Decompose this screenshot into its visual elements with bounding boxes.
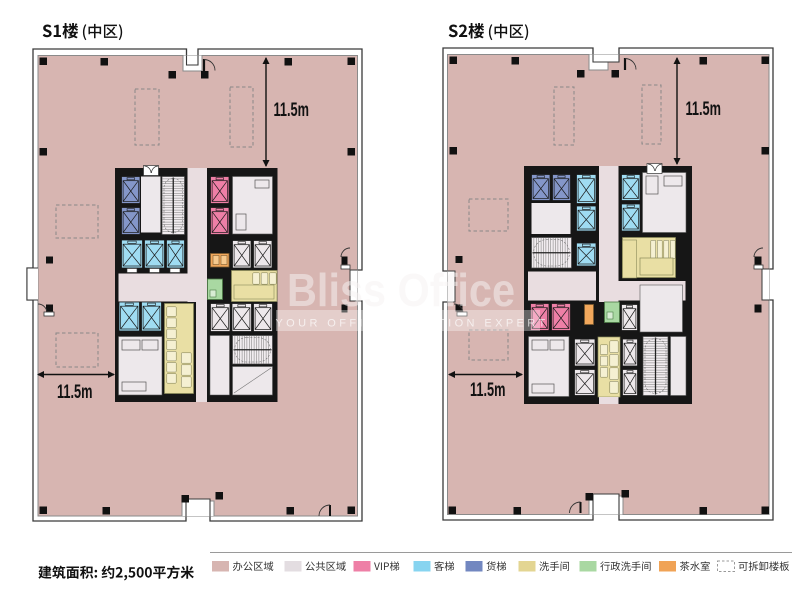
- svg-text:11.5m: 11.5m: [470, 379, 506, 401]
- svg-text:YOUR OFFICE SOLUTION EXPERT: YOUR OFFICE SOLUTION EXPERT: [275, 318, 548, 330]
- svg-text:11.5m: 11.5m: [274, 99, 310, 121]
- svg-text:Bliss Office: Bliss Office: [287, 264, 515, 316]
- svg-text:11.5m: 11.5m: [57, 381, 93, 403]
- svg-text:11.5m: 11.5m: [686, 98, 722, 120]
